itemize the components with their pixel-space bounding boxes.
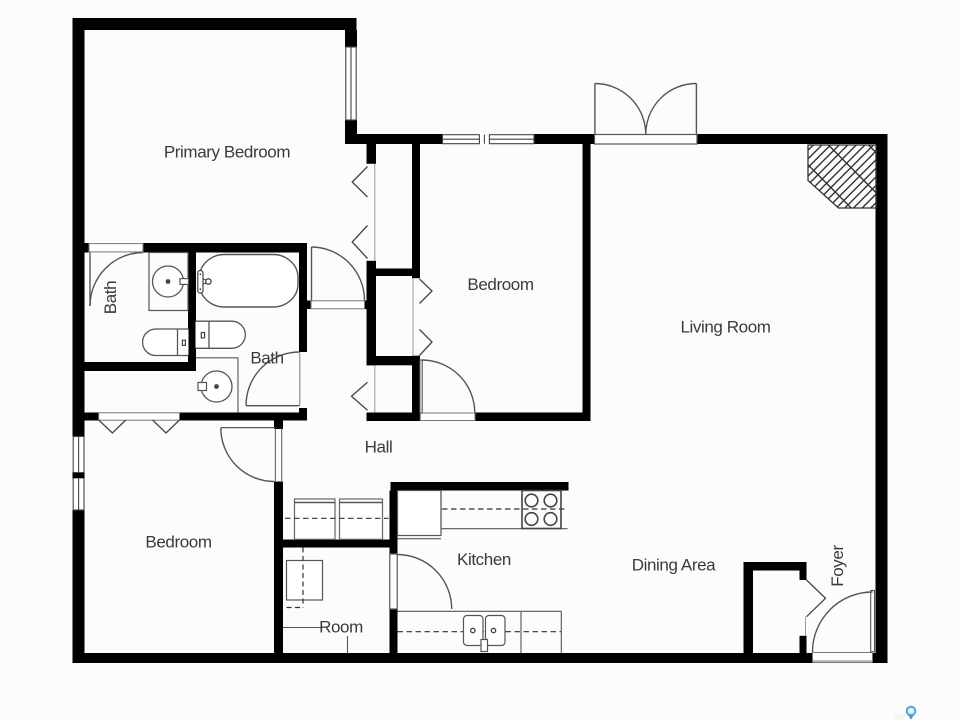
svg-text:Hall: Hall: [365, 438, 393, 457]
svg-text:Bath: Bath: [250, 349, 283, 368]
svg-text:Living Room: Living Room: [680, 318, 770, 337]
svg-text:Bath: Bath: [101, 281, 120, 314]
svg-text:Bedroom: Bedroom: [145, 533, 211, 552]
svg-text:Bedroom: Bedroom: [467, 275, 533, 294]
svg-text:Dining Area: Dining Area: [632, 556, 716, 575]
svg-text:Room: Room: [319, 618, 363, 637]
svg-text:Primary Bedroom: Primary Bedroom: [164, 143, 290, 162]
svg-text:Kitchen: Kitchen: [457, 550, 511, 569]
svg-text:Foyer: Foyer: [828, 545, 847, 587]
